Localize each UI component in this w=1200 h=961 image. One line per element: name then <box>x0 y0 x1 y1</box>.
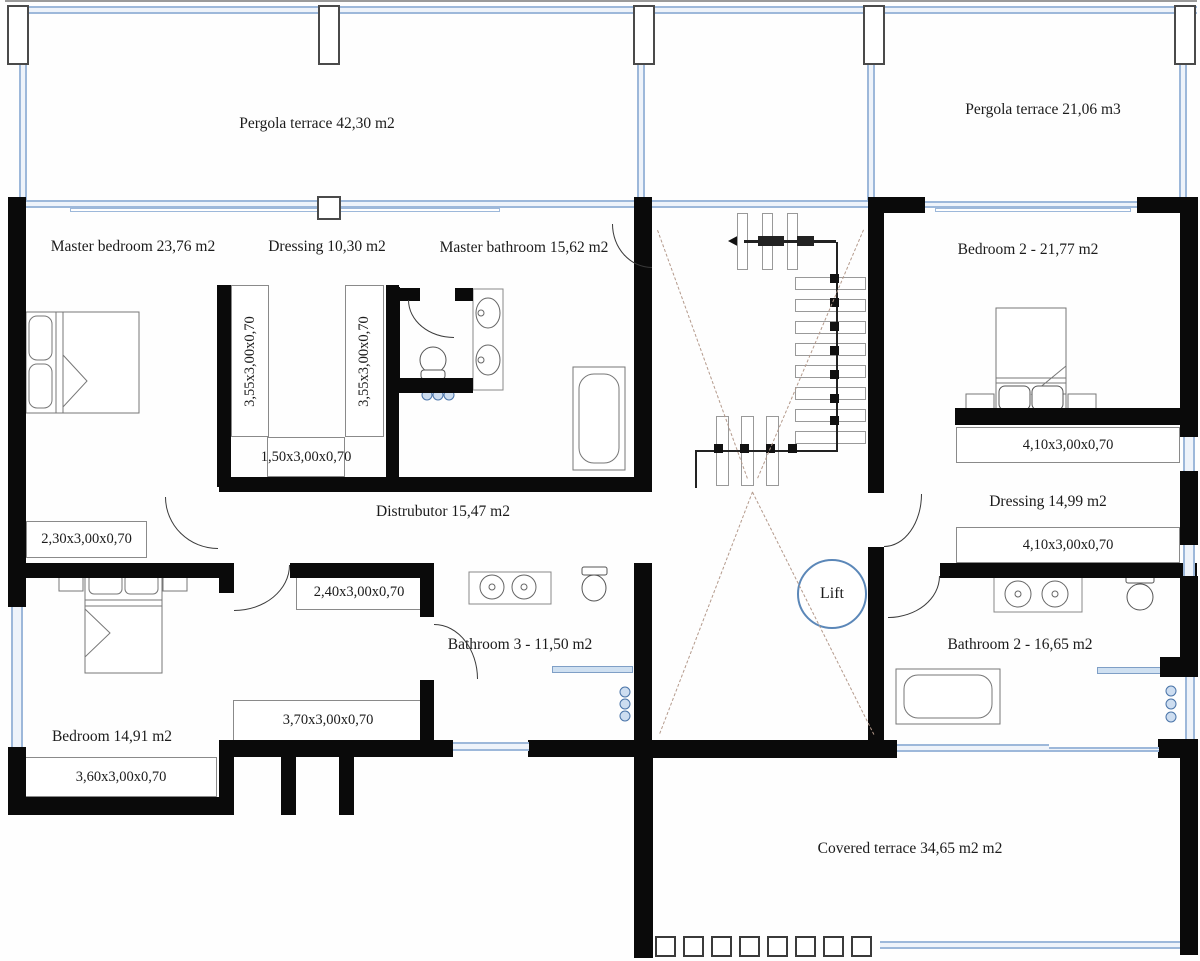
bathroom3-toilet <box>578 566 610 602</box>
stair-marker-h-1 <box>714 444 723 453</box>
terrace-baluster-3 <box>711 936 732 957</box>
window-bedroom-left <box>11 607 23 747</box>
window-bath2-bottom-2 <box>1049 747 1159 752</box>
wall-bedroom2-dressing2 <box>955 408 1197 425</box>
wall-right-stub <box>1160 657 1197 677</box>
closet-240: 2,40x3,00x0,70 <box>296 574 422 610</box>
bedroom-label: Bedroom 14,91 m2 <box>52 728 172 746</box>
stair-marker-v-4 <box>830 346 839 355</box>
door-bedroom <box>234 565 290 611</box>
pergola-column-3 <box>633 5 655 65</box>
floor-plan: Pergola terrace 42,30 m2 Pergola terrace… <box>0 0 1200 961</box>
stair-marker-v-7 <box>830 416 839 425</box>
pergola-glass-2 <box>637 65 645 201</box>
wall-wc-top-right <box>455 288 473 301</box>
wall-stub-b <box>339 757 354 815</box>
closet-355-right-label: 3,55x3,00x0,70 <box>356 316 373 407</box>
door-bathroom2 <box>888 576 940 618</box>
stair-dash-1 <box>657 230 748 479</box>
window-post <box>317 196 341 220</box>
wardrobe-410-bottom-label: 4,10x3,00x0,70 <box>1023 537 1114 554</box>
closet-150-label: 1,50x3,00x0,70 <box>261 449 352 466</box>
window-bath2-bottom-1 <box>897 744 1049 752</box>
bathroom3-shower-screen <box>552 666 633 673</box>
pergola-column-5 <box>1174 5 1196 65</box>
stair-marker-v-5 <box>830 370 839 379</box>
bathroom2-bathtub <box>895 668 1001 725</box>
dressing2-label: Dressing 14,99 m2 <box>989 493 1107 511</box>
pergola-column-4 <box>863 5 885 65</box>
window-bedroom2-top <box>925 201 1137 208</box>
closet-370-label: 3,70x3,00x0,70 <box>283 712 374 729</box>
wall-bath3-left-lower <box>420 680 434 740</box>
window-bath3-bottom <box>453 742 529 751</box>
wall-stub-a <box>281 757 296 815</box>
stair-marker-v-1 <box>830 274 839 283</box>
stair-dash-3 <box>659 492 753 734</box>
covered-terrace-label: Covered terrace 34,65 m2 m2 <box>818 840 1003 858</box>
window-sill-left <box>70 208 500 212</box>
door-bathroom3 <box>434 624 478 679</box>
lift-circle: Lift <box>797 559 867 629</box>
window-terrace-railing <box>880 941 1180 949</box>
master-wc-toilet <box>416 346 450 382</box>
wall-bath2-bottom-right <box>1158 739 1198 758</box>
wardrobe-410-top-label: 4,10x3,00x0,70 <box>1023 437 1114 454</box>
wall-stair-west-lower <box>634 563 652 758</box>
pergola-column-1 <box>7 5 29 65</box>
stair-marker-v-3 <box>830 322 839 331</box>
pergola-beam <box>8 6 1197 14</box>
wardrobe-410-bottom: 4,10x3,00x0,70 <box>956 527 1180 563</box>
closet-370: 3,70x3,00x0,70 <box>233 700 423 741</box>
pergola-glass-3 <box>867 65 875 201</box>
wall-left-upper <box>8 197 26 607</box>
closet-240-label: 2,40x3,00x0,70 <box>314 584 405 601</box>
window-sill-right <box>935 208 1131 212</box>
wall-bedroom-bottom <box>8 797 234 815</box>
wardrobe-410-top: 4,10x3,00x0,70 <box>956 427 1180 463</box>
door-master-bathroom <box>612 224 652 268</box>
stair-marker-h-4 <box>788 444 797 453</box>
bathroom2-vanity <box>993 575 1083 613</box>
terrace-baluster-8 <box>851 936 872 957</box>
door-master-bedroom <box>165 497 218 549</box>
terrace-baluster-1 <box>655 936 676 957</box>
pergola-glass-1 <box>19 65 27 201</box>
terrace-baluster-6 <box>795 936 816 957</box>
master-bedroom-label: Master bedroom 23,76 m2 <box>51 238 215 256</box>
bedroom2-bed <box>964 306 1098 422</box>
window-right-2 <box>1183 545 1195 576</box>
stair-marker-v-6 <box>830 394 839 403</box>
pergola-terrace-left-label: Pergola terrace 42,30 m2 <box>239 115 395 133</box>
terrace-baluster-7 <box>823 936 844 957</box>
stair-arrow-bold-1 <box>758 236 784 246</box>
terrace-baluster-4 <box>739 936 760 957</box>
wall-terrace-left <box>634 758 653 958</box>
wall-dressing2-bottom <box>940 563 1197 578</box>
wall-right-upper <box>1180 197 1198 437</box>
wall-dressing-left <box>217 285 231 487</box>
wall-closetroom-bottom <box>219 740 453 757</box>
bathroom2-towel-radiator <box>1162 684 1180 724</box>
wall-terrace-right <box>1180 758 1198 955</box>
stair-marker-h-2 <box>740 444 749 453</box>
bathroom3-towel-radiator <box>616 686 634 722</box>
pergola-column-2 <box>318 5 340 65</box>
window-stairhall-top <box>652 200 868 208</box>
stair-tread-right-8 <box>795 431 866 444</box>
wall-corridor-stub <box>219 563 234 593</box>
lift-label: Lift <box>820 585 844 603</box>
closet-230-label: 2,30x3,00x0,70 <box>41 531 132 548</box>
wall-bedroom2-top-left <box>868 197 925 213</box>
pergola-terrace-right-label: Pergola terrace 21,06 m3 <box>965 101 1121 119</box>
wall-bath3-left-upper <box>420 563 434 617</box>
bedroom2-label: Bedroom 2 - 21,77 m2 <box>958 241 1099 259</box>
closet-355-left-label: 3,55x3,00x0,70 <box>242 316 259 407</box>
closet-360-label: 3,60x3,00x0,70 <box>76 769 167 786</box>
stair-arrow-bold-2 <box>797 236 814 246</box>
wall-stair-east-upper <box>868 213 884 493</box>
wall-stairhall-bottom <box>634 740 897 758</box>
master-bathtub <box>572 366 626 471</box>
bathroom2-label: Bathroom 2 - 16,65 m2 <box>947 636 1092 654</box>
closet-355-right: 3,55x3,00x0,70 <box>345 285 384 437</box>
bathroom3-vanity <box>468 571 552 605</box>
pergola-edge-line <box>5 0 1197 2</box>
master-bathroom-label: Master bathroom 15,62 m2 <box>440 239 609 257</box>
terrace-baluster-5 <box>767 936 788 957</box>
dressing1-label: Dressing 10,30 m2 <box>268 238 386 256</box>
bedroom-bed <box>58 569 188 675</box>
terrace-baluster-2 <box>683 936 704 957</box>
window-bathroom2-right <box>1185 677 1195 739</box>
closet-150: 1,50x3,00x0,70 <box>267 437 345 477</box>
distributor-label: Distrubutor 15,47 m2 <box>376 503 510 521</box>
bathroom2-toilet <box>1122 574 1158 612</box>
closet-360: 3,60x3,00x0,70 <box>25 757 217 797</box>
master-bed <box>25 311 141 415</box>
stair-rail-end <box>695 450 697 488</box>
window-right-1 <box>1183 437 1195 471</box>
wall-right-mid <box>1180 471 1198 545</box>
closet-230: 2,30x3,00x0,70 <box>26 521 147 558</box>
wall-corridor-bottom-1 <box>8 563 220 578</box>
door-master-wc <box>408 300 454 338</box>
master-bath-vanity <box>472 288 504 391</box>
wall-wc-bottom <box>387 378 473 393</box>
wall-stair-east-lower <box>868 547 884 740</box>
door-dressing2 <box>884 494 922 547</box>
wall-corridor-top <box>219 477 652 492</box>
closet-355-left: 3,55x3,00x0,70 <box>231 285 269 437</box>
wall-corridor-bottom-2 <box>290 563 420 578</box>
pergola-glass-4 <box>1179 65 1187 197</box>
